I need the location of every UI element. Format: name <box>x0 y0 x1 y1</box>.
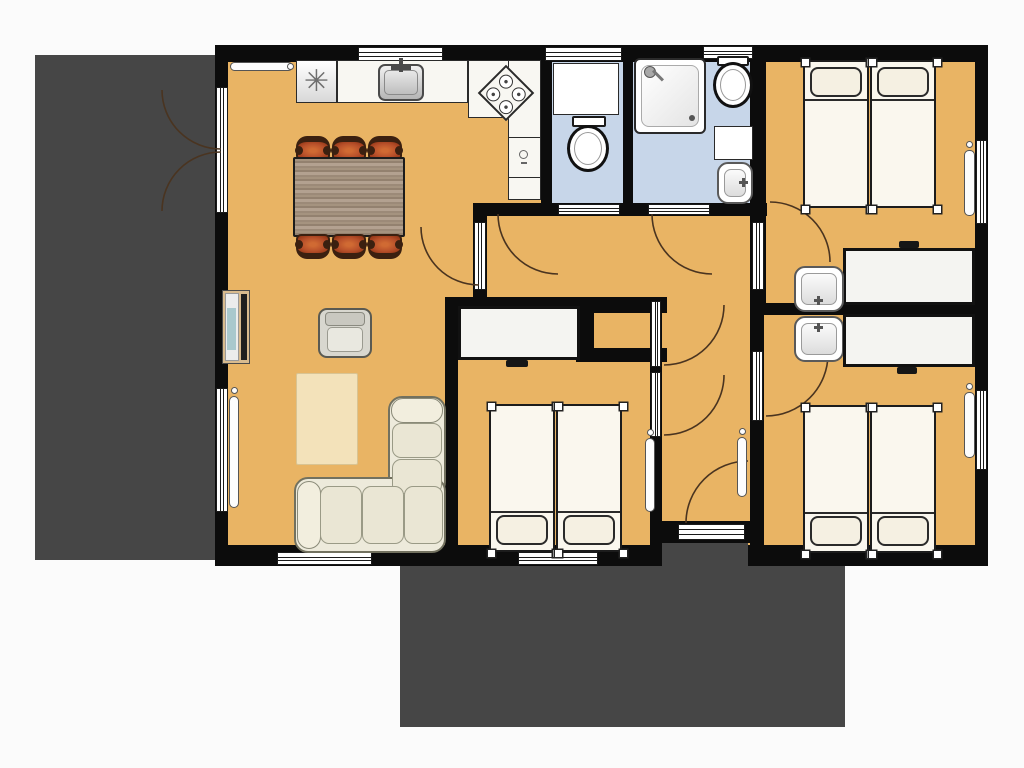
bed-posts <box>869 404 876 411</box>
wardrobe-handle <box>506 360 528 367</box>
radiator-bedroom-mid <box>645 438 655 512</box>
burner-icon <box>496 97 516 117</box>
bed-line <box>872 512 934 514</box>
wc-appliance <box>553 63 619 115</box>
bath-counter <box>714 126 753 160</box>
radiator-bedroom-tr <box>964 150 975 216</box>
bed-line <box>491 511 553 513</box>
radiator-kitchen <box>230 62 293 71</box>
sofa-cushion <box>320 486 362 544</box>
exit-door <box>678 524 745 540</box>
radiator-bedroom-mid-valve <box>647 429 654 436</box>
dishwasher-icon-bar <box>521 162 527 164</box>
wardrobe-bedroom-br <box>843 314 975 367</box>
bed-single <box>489 404 555 552</box>
armchair-back <box>325 312 365 326</box>
radiator-bedroom-br-valve <box>966 383 973 390</box>
bed-line <box>805 99 867 101</box>
terrace-left <box>35 55 222 560</box>
dining-chair <box>332 234 366 259</box>
tv-accent <box>227 308 236 350</box>
radiator-hall <box>737 437 747 497</box>
window-wc-top <box>545 47 622 61</box>
sofa-cushion <box>362 486 404 544</box>
dishwasher-icon <box>519 150 528 159</box>
freezer-icon: ✳ <box>304 64 329 99</box>
bed-single <box>870 60 936 208</box>
bed-line <box>558 511 620 513</box>
fridge-freezer: ✳ <box>296 60 337 103</box>
sofa-cushion <box>392 423 442 458</box>
radiator-bedroom-tr-valve <box>966 141 973 148</box>
pillow <box>877 67 929 97</box>
window-living-left <box>216 388 228 512</box>
window-bedroom-tr-right <box>976 140 987 224</box>
burner-icon <box>509 85 529 105</box>
pillow <box>810 516 862 546</box>
bed-single <box>803 405 869 553</box>
window-living-bottom <box>277 552 372 565</box>
radiator-hall-valve <box>739 428 746 435</box>
bed-posts <box>802 59 809 66</box>
wall-wc-bath <box>623 62 633 214</box>
door-leaf-closet <box>651 301 661 367</box>
door-leaf-bedroom-mid <box>651 372 661 437</box>
sofa-cushion <box>404 486 443 544</box>
bath-tap-bar <box>739 181 748 184</box>
window-bedroom-br-right <box>976 390 987 470</box>
wall-bath-south <box>473 203 767 216</box>
wardrobe-handle <box>899 241 919 248</box>
shower-drain <box>689 115 695 121</box>
wardrobe-bedroom-mid <box>458 306 580 360</box>
bed-posts <box>869 59 876 66</box>
pillow <box>877 516 929 546</box>
bed-posts <box>555 403 562 410</box>
wardrobe-bedroom-tr <box>843 248 975 305</box>
kitchen-faucet-stem <box>399 58 403 72</box>
wardrobe-handle <box>897 367 917 374</box>
dishwasher <box>508 137 541 178</box>
wc-toilet-bowl <box>567 125 609 172</box>
door-leaf-bedroom-tr <box>752 222 764 290</box>
pillow <box>810 67 862 97</box>
pillow <box>563 515 615 545</box>
bed-single <box>556 404 622 552</box>
pillow <box>496 515 548 545</box>
bed-single <box>870 405 936 553</box>
terrace-bottom <box>400 566 845 727</box>
dining-chair <box>296 234 330 259</box>
wall-kitchen-wc <box>541 62 552 214</box>
rug <box>296 373 358 465</box>
dining-table <box>293 157 405 237</box>
terrace-door-recess <box>662 543 748 566</box>
tv-screen-bar <box>241 294 247 360</box>
radiator-bedroom-br <box>964 392 975 458</box>
bath-toilet-bowl <box>713 62 753 108</box>
sofa-armrest-left <box>297 481 321 549</box>
wall-living-midbedroom <box>445 297 458 566</box>
floor-plan: ✳ <box>0 0 1024 768</box>
french-door <box>216 87 228 213</box>
window-midbedroom-bottom <box>518 552 598 565</box>
door-leaf-bath <box>648 204 710 215</box>
radiator-kitchen-valve <box>287 63 294 70</box>
washbasin-bedroom-tr <box>794 266 844 312</box>
armchair-seat <box>327 327 363 352</box>
washbasin-br-tap-bar <box>814 326 823 329</box>
radiator-living-valve <box>231 387 238 394</box>
washbasin-tr-tap-bar <box>814 299 823 302</box>
radiator-living <box>229 396 239 508</box>
bed-posts <box>488 403 495 410</box>
sofa-headrest <box>391 398 443 423</box>
bed-single <box>803 60 869 208</box>
bed-line <box>805 512 867 514</box>
bed-posts <box>802 404 809 411</box>
door-leaf-bedroom-br <box>752 351 763 421</box>
door-leaf-living <box>474 222 486 290</box>
dining-chair <box>368 234 402 259</box>
bed-line <box>872 99 934 101</box>
door-leaf-wc <box>558 204 620 215</box>
